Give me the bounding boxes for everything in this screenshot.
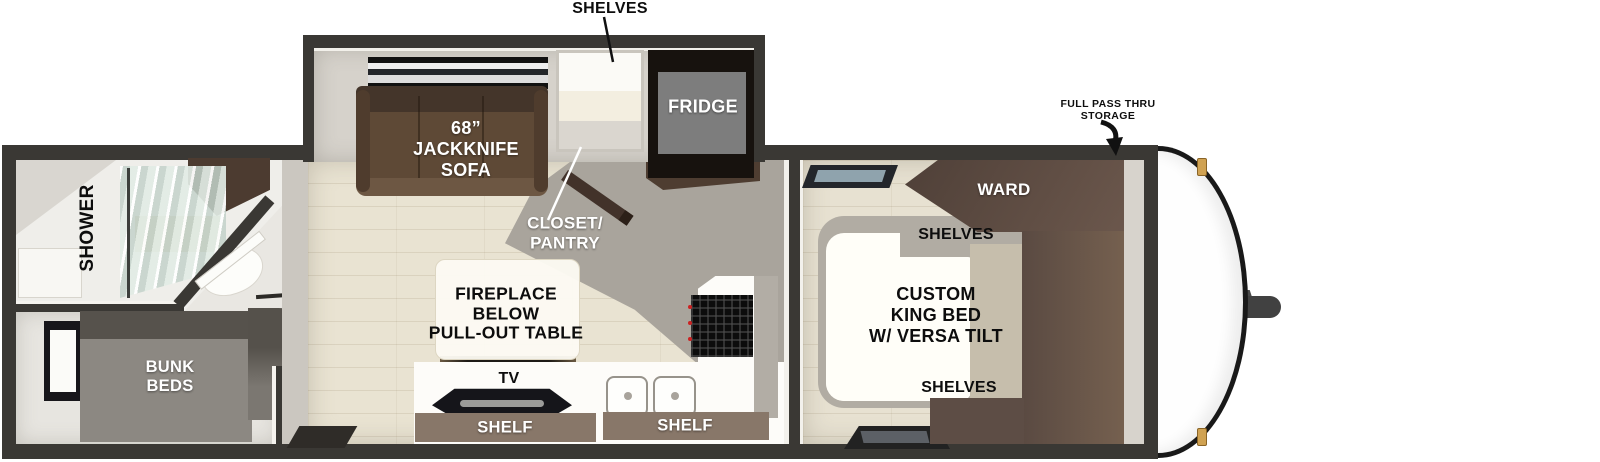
wardrobe-bottom [930, 398, 1024, 444]
cap-clip-bottom [1197, 428, 1207, 446]
sofa-seam [418, 96, 420, 182]
cooktop-knob [688, 305, 692, 309]
wall-bottom [2, 444, 1158, 459]
sofa-front [356, 178, 548, 196]
fridge-front [658, 72, 746, 154]
shelf-bar-left [415, 413, 596, 442]
king-bed-mattress [826, 257, 972, 401]
sofa-seam [482, 96, 484, 182]
entry-transition [282, 160, 308, 444]
pullout-table [435, 259, 580, 360]
bedroom-vent-inner [861, 431, 930, 443]
pass-thru-storage-label: FULL PASS THRU STORAGE [1060, 98, 1155, 122]
fridge [648, 50, 754, 178]
cap-clip-top [1197, 158, 1207, 176]
cooktop [691, 295, 753, 357]
sink-drain [671, 392, 679, 400]
cooktop-knob [688, 321, 692, 325]
counter-end-panel [754, 276, 778, 418]
bunk-bed-headband [80, 311, 252, 339]
sink-drain [624, 392, 632, 400]
sofa-seat [356, 112, 548, 178]
passthru-strip [1124, 160, 1144, 444]
cooktop-knob [688, 337, 692, 341]
slideout-window [368, 57, 548, 89]
vanity [18, 248, 82, 298]
wardrobe-column [1022, 231, 1124, 444]
sofa-back [356, 86, 548, 112]
pantry-lower [559, 121, 641, 149]
shelf-bar-right [603, 412, 769, 440]
floorplan: SHELVES 68” JACKKNIFE SOFA FRIDGE CLOSET… [0, 0, 1600, 462]
pantry-shelves-unit [556, 50, 644, 152]
sofa-armrest [534, 90, 548, 192]
front-cap [1156, 146, 1248, 458]
bedroom-window-pane [814, 170, 886, 182]
bed-headboard-panel [970, 244, 1024, 404]
sofa-armrest [356, 90, 370, 192]
tv-screen-line [460, 400, 544, 407]
wall-front [1144, 145, 1158, 459]
bunk-window-pane [50, 330, 80, 392]
pantry-shelf-band [559, 91, 641, 121]
jackknife-sofa [356, 86, 548, 196]
shelves-callout-label: SHELVES [572, 0, 648, 18]
partition-wall [789, 160, 800, 444]
shower-door-pole [127, 168, 130, 298]
pass-thru-arrow [1101, 122, 1116, 142]
wall-rear [2, 145, 16, 459]
